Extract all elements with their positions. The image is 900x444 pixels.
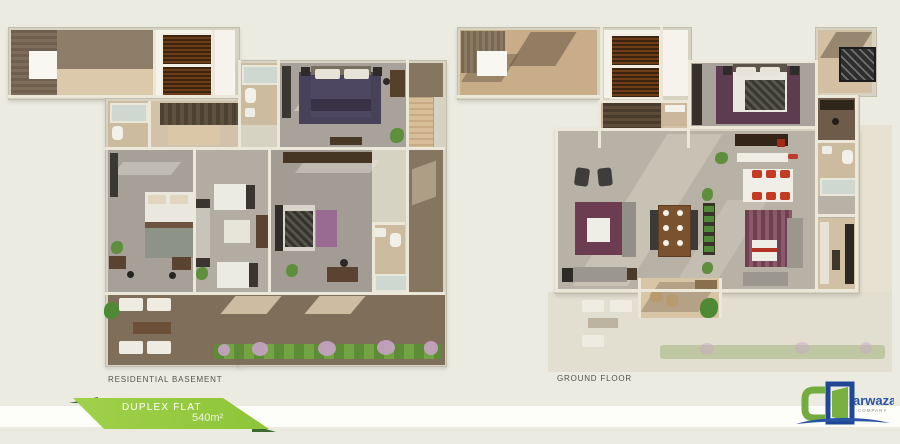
coffee-table xyxy=(587,218,610,242)
wall xyxy=(598,100,690,103)
duplex-flat-ribbon: DUPLEX FLAT 540m² xyxy=(68,396,280,434)
side-table xyxy=(627,268,637,280)
wall xyxy=(555,128,558,292)
powder-room-sink xyxy=(665,105,685,112)
logo-wordmark: arwaza xyxy=(853,393,894,408)
logo-d-glyph xyxy=(805,390,825,418)
darwaza-logo: arwaza COMPANY xyxy=(792,376,894,430)
armchair xyxy=(574,167,590,187)
kitchen2-cabinets xyxy=(820,222,829,284)
vanity-stool xyxy=(832,118,839,125)
wood-panel xyxy=(610,34,661,67)
red-chair xyxy=(752,170,762,178)
ghost-flowers xyxy=(700,343,714,355)
ghost-flowers xyxy=(795,342,809,354)
planter-corner xyxy=(562,268,573,282)
living-plant xyxy=(702,188,713,201)
wall xyxy=(555,289,858,292)
master2-tv-wall xyxy=(692,64,702,125)
kitchen2-appliances xyxy=(845,224,854,284)
wicker-chair xyxy=(666,294,679,307)
wall xyxy=(688,60,818,63)
fireplace-box xyxy=(777,139,785,147)
plate xyxy=(663,210,669,216)
red-chair xyxy=(766,192,776,200)
ghost-lounger xyxy=(610,300,632,312)
ghost-hedge xyxy=(660,345,885,359)
patio-plant xyxy=(700,298,718,318)
spiral-stair xyxy=(839,47,876,82)
kitchen-counter xyxy=(737,153,788,162)
bath2-toilet xyxy=(842,150,853,164)
wall xyxy=(719,278,722,318)
entry-landing xyxy=(477,51,507,76)
wall xyxy=(815,214,858,217)
wall xyxy=(600,27,603,100)
floorplan-sheet: RESIDENTIAL BASEMENT GROUND FLOOR DUPLEX… xyxy=(0,0,900,444)
plate xyxy=(677,240,683,246)
sofa-bottom xyxy=(573,267,627,282)
ghost-lounger xyxy=(582,300,604,312)
ghost-lounger xyxy=(582,335,604,347)
bath2-tub xyxy=(820,178,858,196)
wall xyxy=(457,95,600,98)
wall xyxy=(815,95,858,98)
wall xyxy=(815,95,818,292)
plate xyxy=(663,240,669,246)
wall xyxy=(598,100,601,148)
master2-nightstand xyxy=(790,66,799,75)
master2-pillow xyxy=(736,67,756,76)
ghost-flowers xyxy=(860,342,872,354)
sofa-l-shape xyxy=(787,218,803,268)
wall xyxy=(815,140,858,143)
ribbon-area-value: 540m² xyxy=(192,412,223,424)
bath2-sink xyxy=(822,146,832,154)
coffee-table-runner xyxy=(752,248,777,252)
master2-bed-blanket xyxy=(745,80,785,110)
wood-panel xyxy=(610,66,661,99)
plate xyxy=(677,225,683,231)
vanity-counter xyxy=(820,100,854,110)
master2-pillow xyxy=(760,67,780,76)
red-chair xyxy=(780,192,790,200)
planter-greens xyxy=(704,206,714,252)
ghost-terrace-right xyxy=(858,125,892,295)
wall xyxy=(687,100,690,148)
dining-chair xyxy=(650,210,658,250)
white-strip xyxy=(662,30,688,96)
kitchen-counter-items xyxy=(788,154,798,159)
dining-chair xyxy=(690,210,698,250)
kitchen2-island xyxy=(832,250,840,270)
ground-plan-label: GROUND FLOOR xyxy=(557,374,632,383)
plate xyxy=(677,210,683,216)
armchair xyxy=(597,167,613,186)
patio-bench xyxy=(695,280,717,289)
ghost-bench xyxy=(588,318,618,328)
wall xyxy=(660,27,663,100)
red-chair xyxy=(752,192,762,200)
darwaza-logo-graphic: arwaza COMPANY xyxy=(792,376,894,430)
wall xyxy=(558,128,688,131)
sofa-bottom xyxy=(743,272,788,286)
wall xyxy=(690,126,818,129)
wall xyxy=(638,278,641,318)
ribbon-title: DUPLEX FLAT xyxy=(122,402,202,413)
master2-nightstand xyxy=(723,66,732,75)
sofa-side xyxy=(622,202,636,257)
basement-plan-label: RESIDENTIAL BASEMENT xyxy=(108,375,222,384)
wall xyxy=(855,95,858,292)
logo-company-label: COMPANY xyxy=(858,408,887,413)
plate xyxy=(663,225,669,231)
red-chair xyxy=(766,170,776,178)
red-chair xyxy=(780,170,790,178)
logo-open-door-icon xyxy=(832,387,848,421)
living-plant xyxy=(715,152,728,164)
living-plant xyxy=(702,262,713,274)
